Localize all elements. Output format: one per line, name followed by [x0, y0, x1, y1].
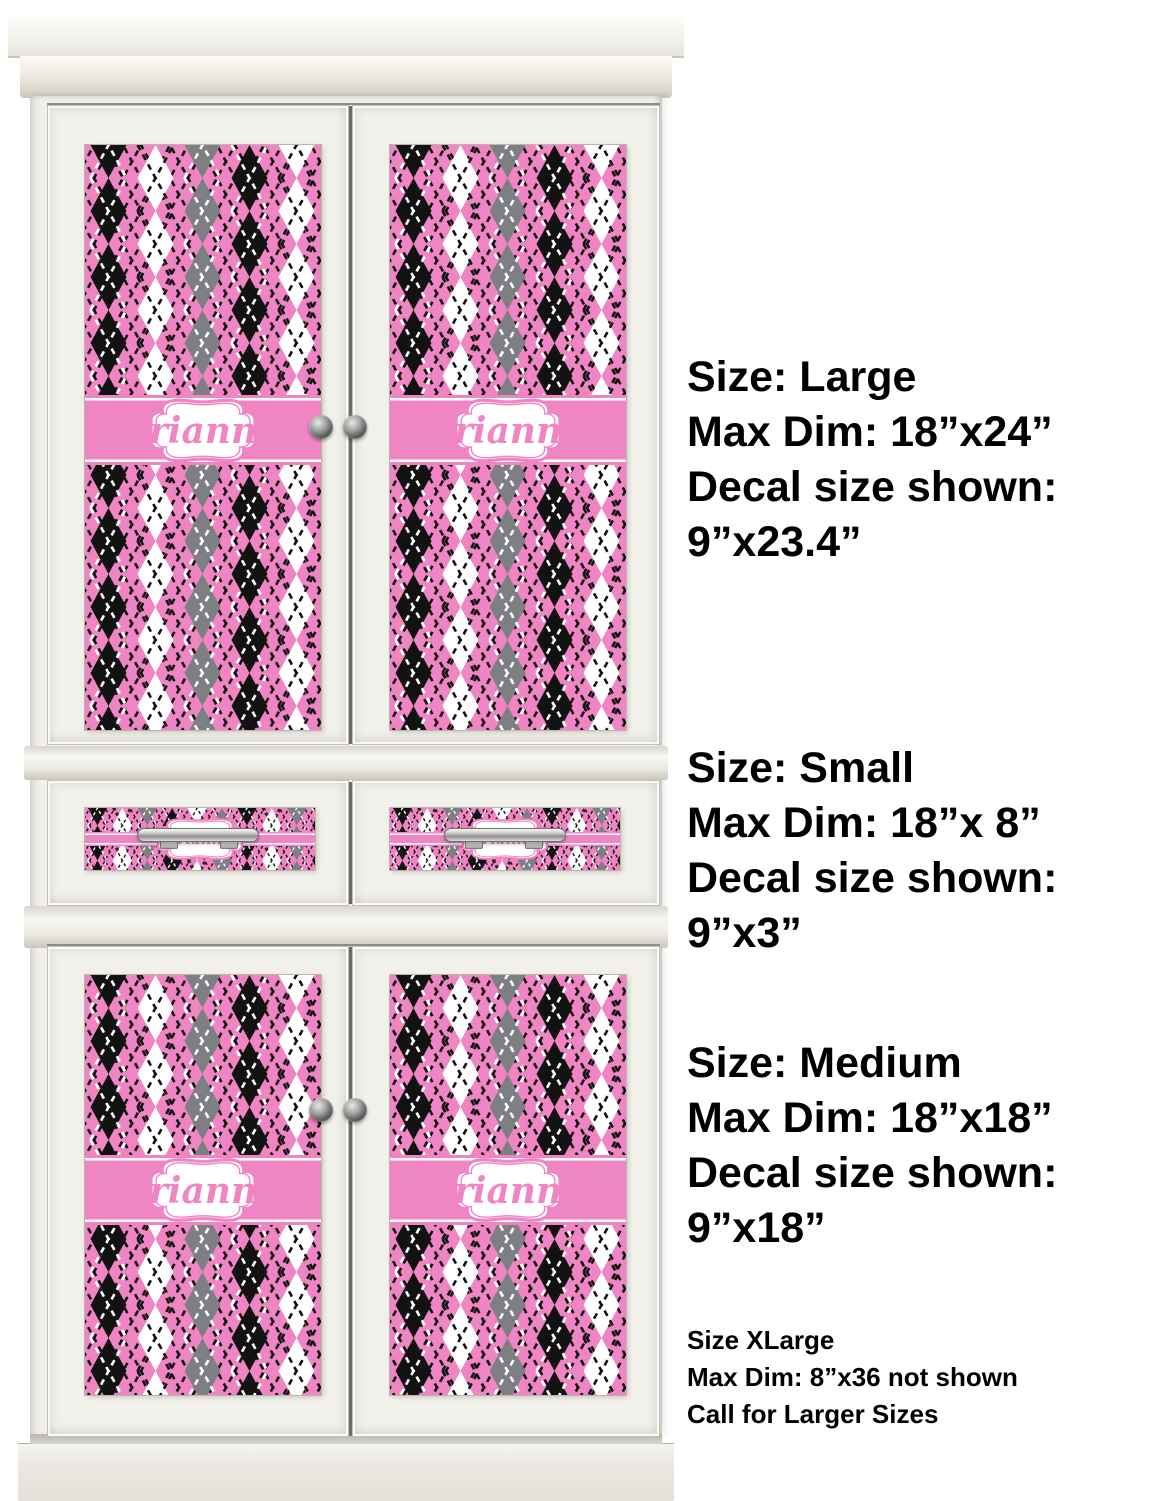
decal-upper-left: arianna: [85, 145, 321, 730]
drawer-handle: [444, 828, 566, 842]
size-annotation-xlarge: Size XLarge Max Dim: 8”x36 not shown Cal…: [687, 1322, 1018, 1433]
decal-name-text: arianna: [126, 410, 281, 452]
size-annotation-large: Size: Large Max Dim: 18”x24” Decal size …: [687, 350, 1057, 570]
size-annotation-medium: Size: Medium Max Dim: 18”x18” Decal size…: [687, 1036, 1057, 1256]
size-line: Size: Large: [687, 350, 1057, 405]
cabinet-molding-strip: [24, 906, 668, 948]
size-line: Max Dim: 8”x36 not shown: [687, 1359, 1018, 1396]
size-line: 9”x18”: [687, 1201, 1057, 1256]
cabinet-seam: [47, 944, 660, 946]
cabinet-drawer-gap: [349, 782, 352, 904]
size-line: Size: Small: [687, 741, 1057, 796]
size-line: Decal size shown:: [687, 851, 1057, 906]
size-line: Decal size shown:: [687, 1146, 1057, 1201]
drawer-handle: [137, 828, 259, 842]
cabinet-seam: [47, 103, 660, 105]
cabinet-molding-strip: [24, 746, 668, 780]
size-line: Size: Medium: [687, 1036, 1057, 1091]
product-image-page: { "product": { "personalized_name": "ari…: [0, 0, 1151, 1500]
door-knob: [309, 1098, 333, 1122]
decal-name-text: arianna: [431, 1170, 586, 1212]
size-line: Decal size shown:: [687, 460, 1057, 515]
decal-lower-left: arianna: [85, 975, 321, 1395]
size-line: Call for Larger Sizes: [687, 1396, 1018, 1433]
size-line: 9”x3”: [687, 906, 1057, 961]
decal-name-text: arianna: [126, 1170, 281, 1212]
size-line: Max Dim: 18”x24”: [687, 405, 1057, 460]
decal-lower-right: arianna: [390, 975, 626, 1395]
door-knob: [309, 415, 333, 439]
door-knob: [343, 1098, 367, 1122]
size-annotation-small: Size: Small Max Dim: 18”x 8” Decal size …: [687, 741, 1057, 961]
cabinet-crown-molding: [20, 56, 672, 98]
cabinet-base-plinth: [18, 1443, 674, 1501]
door-knob: [343, 415, 367, 439]
cabinet-door-gap: [349, 947, 352, 1436]
size-line: Max Dim: 18”x18”: [687, 1091, 1057, 1146]
decal-upper-right: arianna: [390, 145, 626, 730]
size-line: Max Dim: 18”x 8”: [687, 796, 1057, 851]
size-line: 9”x23.4”: [687, 515, 1057, 570]
size-line: Size XLarge: [687, 1322, 1018, 1359]
decal-name-text: arianna: [431, 410, 586, 452]
cabinet-crown-top: [8, 14, 684, 58]
